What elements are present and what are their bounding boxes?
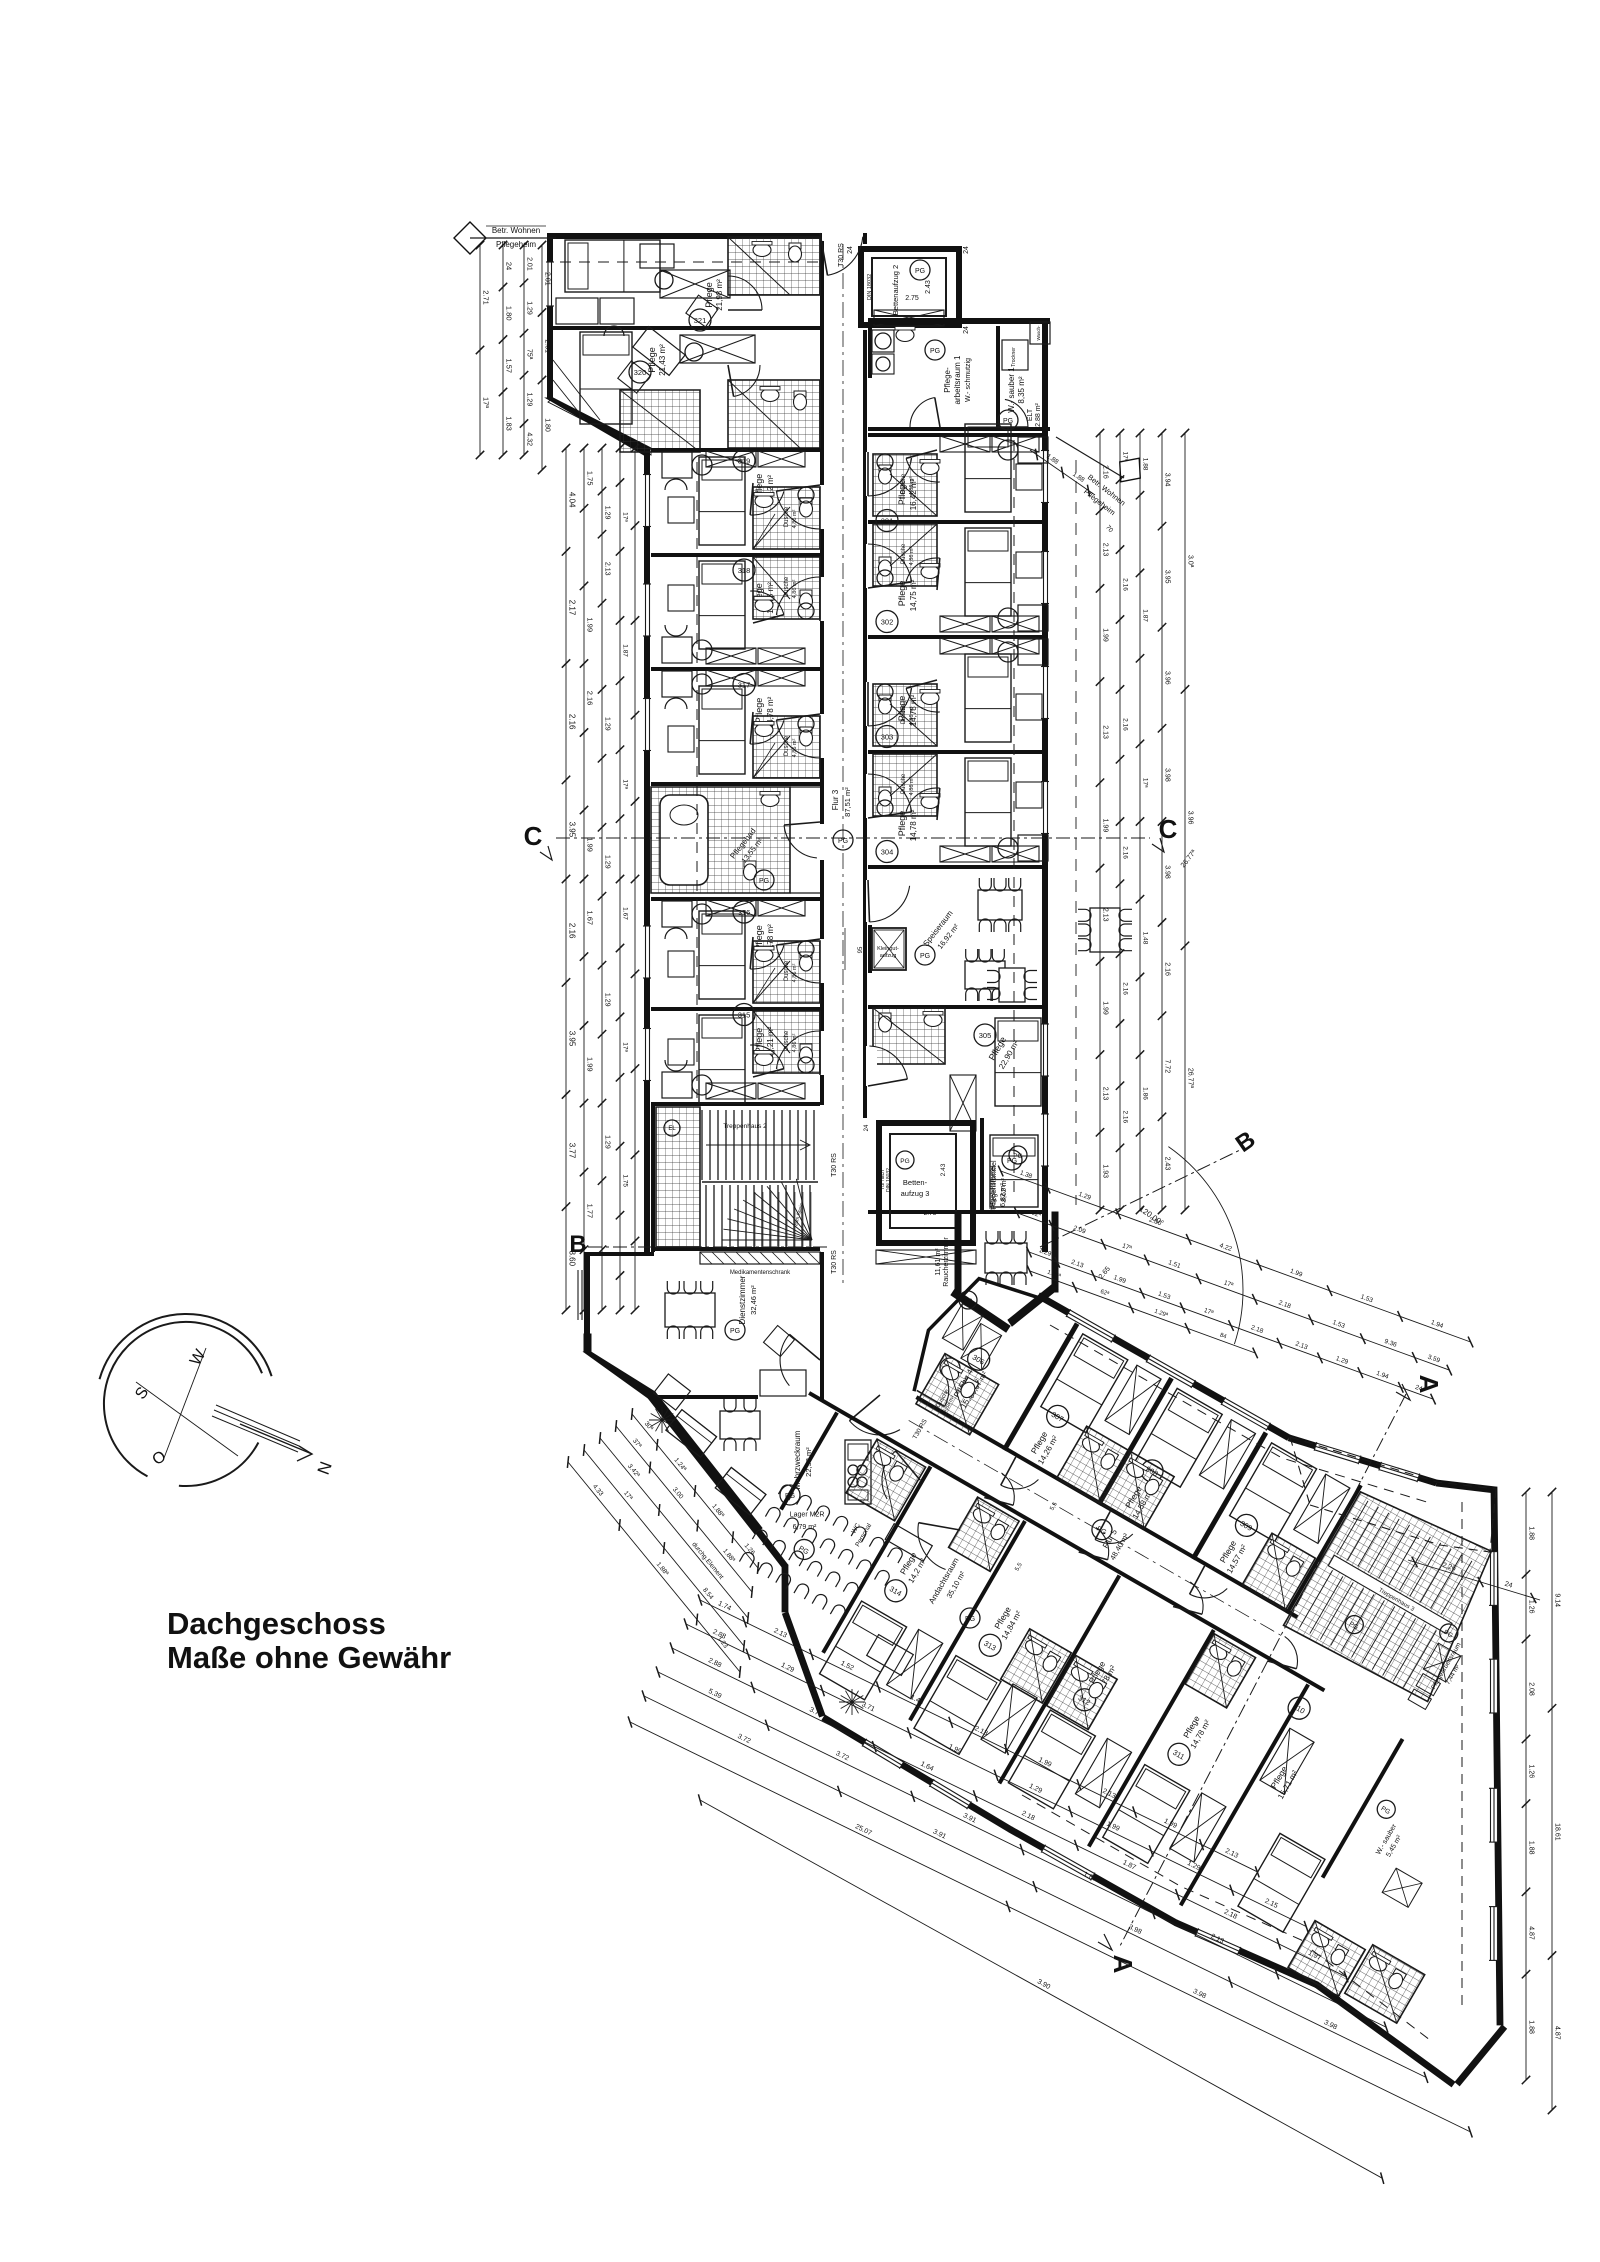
svg-text:3.95: 3.95 (568, 1031, 577, 1047)
svg-text:4,86 m²: 4,86 m² (792, 964, 798, 983)
svg-text:17ª: 17ª (482, 397, 491, 408)
svg-text:2.71: 2.71 (482, 290, 491, 305)
svg-text:1.83: 1.83 (505, 416, 514, 431)
svg-text:4,86 m²: 4,86 m² (909, 707, 915, 726)
svg-text:1.48: 1.48 (1142, 932, 1149, 945)
svg-text:26.77ª: 26.77ª (1187, 1068, 1194, 1089)
svg-text:PG: PG (900, 1158, 909, 1165)
svg-text:2.16: 2.16 (1164, 962, 1171, 976)
svg-text:Betten-: Betten- (903, 1178, 928, 1187)
svg-text:PG: PG (759, 878, 769, 885)
svg-text:Dusche: Dusche (784, 735, 790, 756)
svg-text:2.13: 2.13 (604, 562, 611, 576)
svg-text:9.14: 9.14 (1554, 1593, 1561, 1607)
svg-text:1.99: 1.99 (586, 1057, 595, 1072)
svg-text:304: 304 (881, 848, 894, 857)
svg-text:3.96: 3.96 (1187, 811, 1194, 825)
svg-text:Dusche: Dusche (901, 703, 907, 724)
svg-text:2.13: 2.13 (1102, 1087, 1109, 1101)
svg-text:1.88: 1.88 (1528, 2020, 1535, 2034)
svg-text:1.67: 1.67 (586, 910, 595, 925)
svg-text:2.88 m²: 2.88 m² (1035, 402, 1042, 426)
svg-text:317: 317 (738, 681, 751, 690)
svg-text:8,62 m²: 8,62 m² (1001, 1177, 1008, 1201)
svg-text:1.29: 1.29 (604, 993, 611, 1007)
svg-text:1.75: 1.75 (586, 471, 595, 486)
svg-text:21,98 m²: 21,98 m² (715, 279, 724, 311)
svg-text:316: 316 (738, 908, 751, 917)
svg-text:1.26: 1.26 (1528, 1764, 1535, 1778)
svg-text:Dusche: Dusche (784, 1030, 790, 1051)
svg-text:3.0ª: 3.0ª (1187, 555, 1194, 568)
svg-text:DIN 18032: DIN 18032 (886, 1168, 892, 1192)
svg-text:87,51 m²: 87,51 m² (843, 787, 852, 817)
svg-text:1.29: 1.29 (604, 506, 611, 520)
svg-text:PG: PG (1013, 1153, 1022, 1160)
svg-text:2.75: 2.75 (905, 295, 919, 302)
svg-text:17ª: 17ª (1142, 778, 1149, 788)
svg-text:Dusche: Dusche (784, 576, 790, 597)
svg-text:1.29: 1.29 (604, 717, 611, 731)
svg-text:1.99: 1.99 (1102, 1001, 1109, 1015)
svg-text:1.88: 1.88 (1528, 1841, 1535, 1855)
svg-text:2.43: 2.43 (925, 280, 932, 294)
svg-text:A: A (1108, 1955, 1138, 1974)
svg-text:DIN 18032: DIN 18032 (867, 274, 873, 300)
svg-text:21,43 m²: 21,43 m² (658, 344, 667, 376)
svg-text:1.29: 1.29 (526, 393, 533, 407)
svg-text:4,86 m²: 4,86 m² (792, 739, 798, 758)
svg-text:2.43: 2.43 (1164, 1157, 1171, 1171)
svg-text:4,86 m²: 4,86 m² (909, 777, 915, 796)
svg-text:1.67: 1.67 (622, 907, 629, 920)
svg-text:Dusche: Dusche (901, 543, 907, 564)
svg-text:Treppenhaus 2: Treppenhaus 2 (723, 1123, 767, 1130)
svg-text:EL: EL (668, 1126, 676, 1132)
svg-text:305: 305 (979, 1031, 992, 1040)
svg-text:Pflege-: Pflege- (943, 367, 952, 393)
svg-text:1.87: 1.87 (1142, 609, 1149, 622)
svg-text:1.77: 1.77 (586, 1204, 595, 1219)
svg-text:PG: PG (838, 838, 848, 845)
svg-text:1.26: 1.26 (1528, 1600, 1535, 1614)
svg-text:W.- schmutzig: W.- schmutzig (965, 358, 972, 402)
svg-text:32,46 m²: 32,46 m² (749, 1285, 758, 1315)
svg-text:2.13: 2.13 (1102, 725, 1109, 739)
svg-text:7.72: 7.72 (1164, 1059, 1171, 1073)
svg-text:4,86 m²: 4,86 m² (792, 580, 798, 599)
svg-text:1.29: 1.29 (604, 855, 611, 869)
svg-text:319: 319 (738, 457, 751, 466)
svg-text:1.99: 1.99 (1102, 819, 1109, 833)
svg-text:4,86 m²: 4,86 m² (792, 510, 798, 529)
svg-text:Wasch-: Wasch- (1036, 325, 1041, 341)
svg-text:maschine: maschine (1042, 323, 1047, 343)
svg-text:Pflege: Pflege (704, 282, 714, 308)
svg-text:3.98: 3.98 (1164, 768, 1171, 782)
svg-text:für nach: für nach (860, 277, 866, 297)
svg-text:Medikamentenschrank: Medikamentenschrank (730, 1270, 791, 1276)
svg-text:Dienstzimmer: Dienstzimmer (738, 1275, 747, 1324)
svg-text:1.88: 1.88 (1528, 1526, 1535, 1540)
svg-text:PG: PG (963, 1298, 972, 1305)
svg-text:24: 24 (864, 1124, 870, 1131)
svg-text:arbeitsraum 1: arbeitsraum 1 (953, 355, 962, 404)
svg-text:4.87: 4.87 (1528, 1926, 1535, 1940)
svg-text:Trockner: Trockner (1011, 347, 1017, 367)
svg-text:1.80: 1.80 (544, 418, 551, 432)
svg-text:C: C (1159, 814, 1178, 844)
svg-text:2.13: 2.13 (1102, 908, 1109, 922)
svg-text:8,35 m²: 8,35 m² (1017, 376, 1026, 403)
svg-text:3.94: 3.94 (1164, 473, 1171, 487)
svg-text:2.16: 2.16 (568, 714, 577, 730)
svg-text:17ª: 17ª (622, 512, 629, 522)
svg-text:24: 24 (963, 326, 970, 334)
svg-text:Dusche: Dusche (784, 506, 790, 527)
svg-text:24: 24 (963, 246, 970, 254)
svg-text:17ª: 17ª (622, 779, 629, 789)
svg-text:315: 315 (738, 1011, 751, 1020)
svg-text:T30 RS: T30 RS (831, 1153, 838, 1177)
svg-text:Raucherzimmer: Raucherzimmer (943, 1237, 950, 1287)
svg-text:T30 RS: T30 RS (831, 1250, 838, 1274)
svg-text:A: A (1414, 1375, 1444, 1394)
svg-text:Bettenaufzug 2: Bettenaufzug 2 (891, 265, 900, 315)
svg-text:75ª: 75ª (526, 349, 533, 360)
svg-text:4.04: 4.04 (568, 492, 577, 508)
svg-text:Pflege: Pflege (647, 347, 657, 373)
svg-text:1.29: 1.29 (526, 301, 533, 315)
svg-text:4,86 m²: 4,86 m² (909, 547, 915, 566)
svg-text:C: C (524, 821, 543, 851)
svg-text:PG: PG (730, 1328, 740, 1335)
svg-text:1.93: 1.93 (1102, 1164, 1109, 1178)
svg-text:2.16: 2.16 (586, 691, 595, 706)
svg-text:3.96: 3.96 (1164, 671, 1171, 685)
svg-text:1.99: 1.99 (586, 617, 595, 632)
svg-text:4.87: 4.87 (1554, 2026, 1561, 2040)
svg-text:2.16: 2.16 (1122, 846, 1129, 859)
svg-text:1.99: 1.99 (586, 837, 595, 852)
svg-text:2.08: 2.08 (1528, 1682, 1535, 1696)
svg-text:Flur 3: Flur 3 (831, 789, 840, 810)
svg-text:2.75: 2.75 (924, 1210, 937, 1217)
svg-text:2.16: 2.16 (1122, 718, 1129, 731)
svg-text:320: 320 (634, 368, 647, 377)
svg-text:PG: PG (915, 268, 925, 275)
svg-text:3.95: 3.95 (1164, 570, 1171, 584)
svg-text:95: 95 (858, 946, 864, 953)
svg-text:3.95: 3.95 (568, 822, 577, 838)
svg-text:1.80: 1.80 (505, 306, 514, 321)
svg-text:2.16: 2.16 (1122, 578, 1129, 591)
svg-text:2.01: 2.01 (526, 257, 533, 271)
svg-text:2.01: 2.01 (544, 272, 551, 286)
svg-text:1.88: 1.88 (1142, 458, 1149, 471)
svg-text:Dusche: Dusche (784, 960, 790, 981)
svg-text:3.98: 3.98 (1164, 865, 1171, 879)
svg-text:18.61: 18.61 (1554, 1823, 1561, 1841)
svg-text:24: 24 (505, 262, 514, 270)
svg-text:Dusche: Dusche (901, 473, 907, 494)
svg-text:2.16: 2.16 (568, 923, 577, 939)
svg-text:1.86: 1.86 (1142, 1087, 1149, 1100)
svg-text:2.43: 2.43 (940, 1163, 947, 1176)
svg-text:ELT: ELT (1027, 408, 1034, 421)
svg-text:Betr. Wohnen: Betr. Wohnen (492, 226, 540, 235)
svg-text:T30 RS: T30 RS (838, 243, 845, 267)
svg-text:Lager M2R: Lager M2R (790, 1511, 825, 1518)
svg-text:1.57: 1.57 (505, 358, 514, 373)
svg-text:1.99: 1.99 (1102, 628, 1109, 642)
svg-text:2.16: 2.16 (1122, 982, 1129, 995)
svg-text:Pflegeheim: Pflegeheim (496, 240, 536, 249)
svg-text:2.17: 2.17 (568, 600, 577, 616)
svg-text:302: 302 (881, 618, 894, 627)
svg-text:1.87: 1.87 (622, 644, 629, 657)
svg-text:11,61 m²: 11,61 m² (935, 1248, 942, 1276)
svg-text:2.16: 2.16 (1122, 1110, 1129, 1123)
svg-text:W.- sauber 1: W.- sauber 1 (1007, 367, 1016, 413)
svg-text:aufzug 3: aufzug 3 (901, 1189, 930, 1198)
svg-text:Pflegehilfsmittel: Pflegehilfsmittel (991, 1160, 998, 1209)
svg-text:PG: PG (930, 348, 940, 355)
svg-text:318: 318 (738, 566, 751, 575)
svg-text:1.75: 1.75 (622, 1174, 629, 1187)
svg-text:Kleingut-: Kleingut- (877, 946, 899, 952)
svg-text:aufzug: aufzug (880, 953, 897, 959)
svg-text:24: 24 (847, 246, 854, 254)
svg-text:4.32: 4.32 (526, 432, 533, 446)
svg-text:2.01: 2.01 (544, 339, 551, 353)
svg-text:Dachgeschoss: Dachgeschoss (167, 1606, 386, 1641)
svg-text:PG: PG (920, 953, 930, 960)
svg-text:321: 321 (694, 316, 707, 325)
svg-text:2.13: 2.13 (1102, 543, 1109, 557)
svg-text:Maße ohne Gewähr: Maße ohne Gewähr (167, 1640, 451, 1675)
svg-text:4,86 m²: 4,86 m² (792, 1034, 798, 1053)
svg-text:PG: PG (965, 1616, 975, 1623)
svg-text:Dusche: Dusche (901, 773, 907, 794)
svg-text:17ª: 17ª (622, 1042, 629, 1052)
svg-text:3.77: 3.77 (568, 1143, 577, 1159)
svg-text:1.29: 1.29 (604, 1135, 611, 1149)
svg-text:4,86 m²: 4,86 m² (909, 477, 915, 496)
